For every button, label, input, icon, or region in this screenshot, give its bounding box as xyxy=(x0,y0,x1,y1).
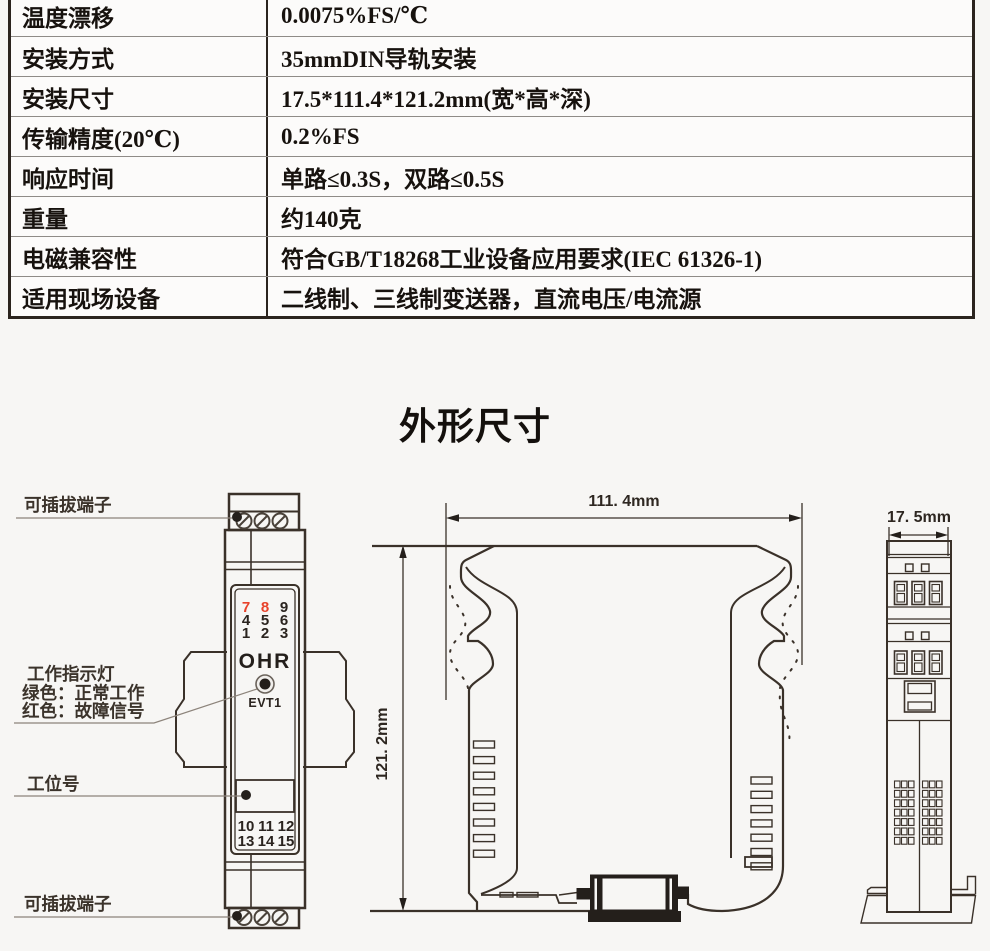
section-title: 外形尺寸 xyxy=(0,396,950,450)
vent-grid-right xyxy=(923,781,943,844)
arrowhead-left xyxy=(889,532,901,539)
spec-label: 安装方式 xyxy=(11,37,268,76)
spec-value: 0.2%FS xyxy=(268,117,972,156)
spec-row-mounting-method: 安装方式 35mmDIN导轨安装 xyxy=(11,36,972,76)
depth-dimension-label: 17. 5mm xyxy=(887,509,951,526)
pin-number: 14 xyxy=(258,833,275,850)
callout-indicator-red: 红色：故障信号 xyxy=(22,701,145,721)
side-view-drawing: 111. 4mm 121. 2mm xyxy=(370,493,802,922)
spec-value: 二线制、三线制变送器，直流电压/电流源 xyxy=(268,277,972,316)
vent-grid-left xyxy=(895,781,915,844)
spec-value: 17.5*111.4*121.2mm(宽*高*深) xyxy=(268,77,972,116)
bottom-foot xyxy=(481,891,588,903)
spec-value: 约140克 xyxy=(268,197,972,236)
pin-number: 13 xyxy=(238,833,255,850)
profile-left-edge xyxy=(461,546,494,911)
terminal-block-top xyxy=(229,494,299,530)
din-rail-clip xyxy=(577,875,690,923)
spec-row-weight: 重量 约140克 xyxy=(11,196,972,236)
module-body xyxy=(225,530,305,908)
spec-value: 0.0075%FS/℃ xyxy=(268,0,972,36)
spec-row-response-time: 响应时间 单路≤0.3S，双路≤0.5S xyxy=(11,156,972,196)
dimension-drawings: 7 8 9 4 5 6 1 2 3 OHR EVT1 10 11 1 xyxy=(0,480,990,951)
spec-label: 响应时间 xyxy=(11,157,268,196)
profile-left-inner xyxy=(466,567,517,894)
spec-row-mounting-size: 安装尺寸 17.5*111.4*121.2mm(宽*高*深) xyxy=(11,76,972,116)
callout-pluggable-terminal-top: 可插拔端子 xyxy=(24,495,112,515)
right-foot xyxy=(745,857,772,867)
spec-label: 重量 xyxy=(11,197,268,236)
callout-indicator-green: 绿色：正常工作 xyxy=(22,683,145,703)
spec-value: 符合GB/T18268工业设备应用要求(IEC 61326-1) xyxy=(268,237,972,276)
end-din-rail xyxy=(861,877,976,924)
spec-label: 安装尺寸 xyxy=(11,77,268,116)
spec-label: 温度漂移 xyxy=(11,0,268,36)
arrowhead-down xyxy=(399,898,406,911)
callout-indicator-title: 工作指示灯 xyxy=(27,664,115,684)
end-terminal-section-1 xyxy=(887,564,951,607)
leader-dot xyxy=(232,512,242,522)
end-terminal-section-2 xyxy=(887,632,951,679)
height-dimension-label: 121. 2mm xyxy=(374,708,391,781)
spec-value: 单路≤0.3S，双路≤0.5S xyxy=(268,157,972,196)
leader-dot xyxy=(232,911,242,921)
spec-row-field-devices: 适用现场设备 二线制、三线制变送器，直流电压/电流源 xyxy=(11,276,972,316)
pin-number: 2 xyxy=(261,625,269,642)
pin-number: 15 xyxy=(278,833,295,850)
spec-row-accuracy: 传输精度(20℃) 0.2%FS xyxy=(11,116,972,156)
arrowhead-right xyxy=(936,532,948,539)
din-rail-right xyxy=(303,652,354,767)
spec-table: 温度漂移 0.0075%FS/℃ 安装方式 35mmDIN导轨安装 安装尺寸 1… xyxy=(8,0,975,319)
pin-numbers-bottom: 10 11 12 13 14 15 xyxy=(238,818,295,850)
end-latch xyxy=(905,681,936,712)
leader-dot xyxy=(241,790,251,800)
din-rail-left xyxy=(176,652,227,767)
spec-label: 电磁兼容性 xyxy=(11,237,268,276)
led-indicator xyxy=(260,679,271,690)
vent-slots-right xyxy=(751,777,772,870)
pin-number: 1 xyxy=(242,625,250,642)
spec-label: 传输精度(20℃) xyxy=(11,117,268,156)
hidden-line-left xyxy=(450,586,468,694)
brand-logo: OHR xyxy=(239,650,292,673)
arrowhead-left xyxy=(446,514,459,522)
vent-slots-left xyxy=(474,741,495,857)
callout-station-number: 工位号 xyxy=(27,774,80,794)
arrowhead-right xyxy=(789,514,802,522)
spec-row-emc: 电磁兼容性 符合GB/T18268工业设备应用要求(IEC 61326-1) xyxy=(11,236,972,276)
spec-label: 适用现场设备 xyxy=(11,277,268,316)
end-view-drawing: 17. 5mm xyxy=(861,509,976,923)
width-dimension-label: 111. 4mm xyxy=(588,493,659,510)
pin-numbers-top: 7 8 9 4 5 6 1 2 3 xyxy=(242,599,288,642)
spec-row-temperature-drift: 温度漂移 0.0075%FS/℃ xyxy=(11,0,972,36)
profile-right-inner xyxy=(731,567,785,858)
callout-pluggable-terminal-bottom: 可插拔端子 xyxy=(24,894,112,914)
profile-right-edge xyxy=(688,546,791,911)
spec-value: 35mmDIN导轨安装 xyxy=(268,37,972,76)
led-label: EVT1 xyxy=(248,696,281,710)
pin-number: 3 xyxy=(280,625,288,642)
front-view-drawing: 7 8 9 4 5 6 1 2 3 OHR EVT1 10 11 1 xyxy=(14,494,354,928)
